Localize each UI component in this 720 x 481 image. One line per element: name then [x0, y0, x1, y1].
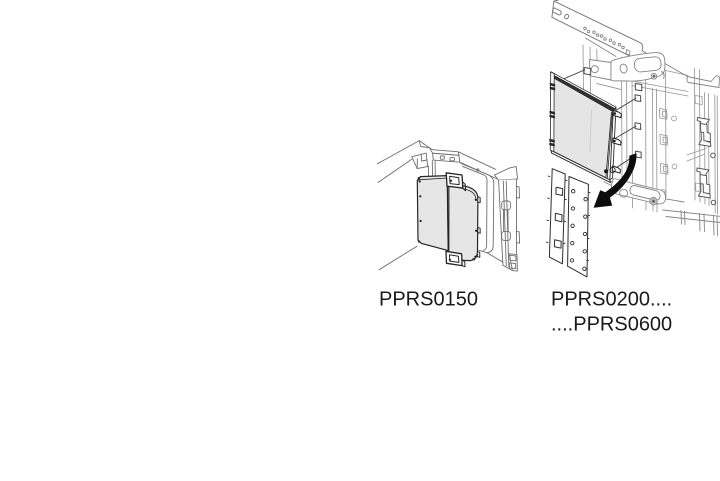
- svg-text:PPRS0200....: PPRS0200....: [551, 289, 672, 311]
- svg-text:PPRS0150: PPRS0150: [379, 289, 478, 311]
- svg-text:....PPRS0600: ....PPRS0600: [551, 314, 672, 336]
